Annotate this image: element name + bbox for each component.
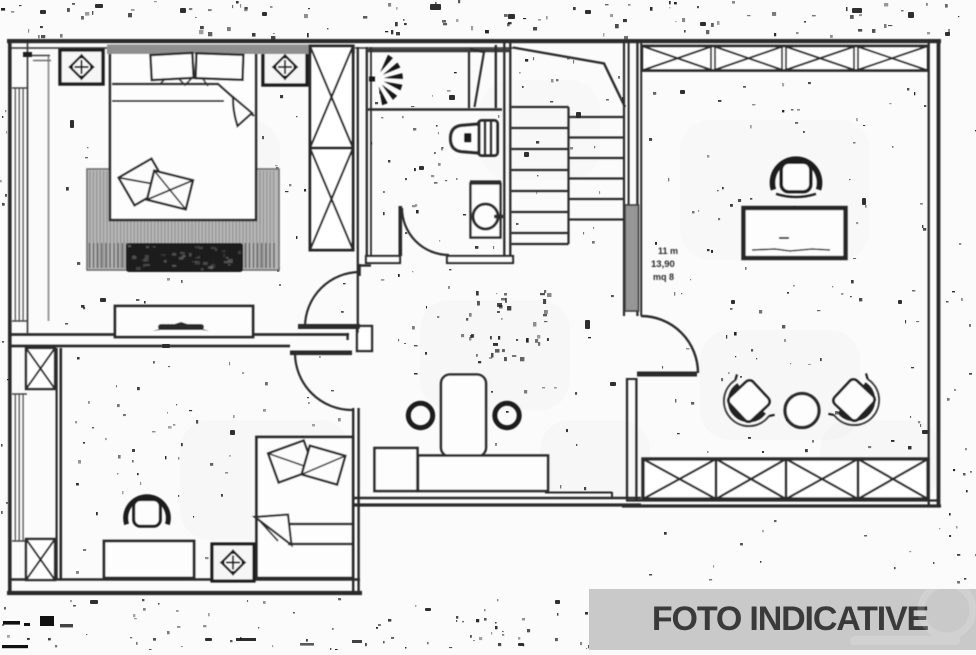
svg-text:FOTO INDICATIVE: FOTO INDICATIVE xyxy=(652,600,929,638)
svg-text:mq 8: mq 8 xyxy=(653,272,674,282)
svg-text:13,90: 13,90 xyxy=(651,259,675,270)
svg-text:11 m: 11 m xyxy=(658,246,678,256)
